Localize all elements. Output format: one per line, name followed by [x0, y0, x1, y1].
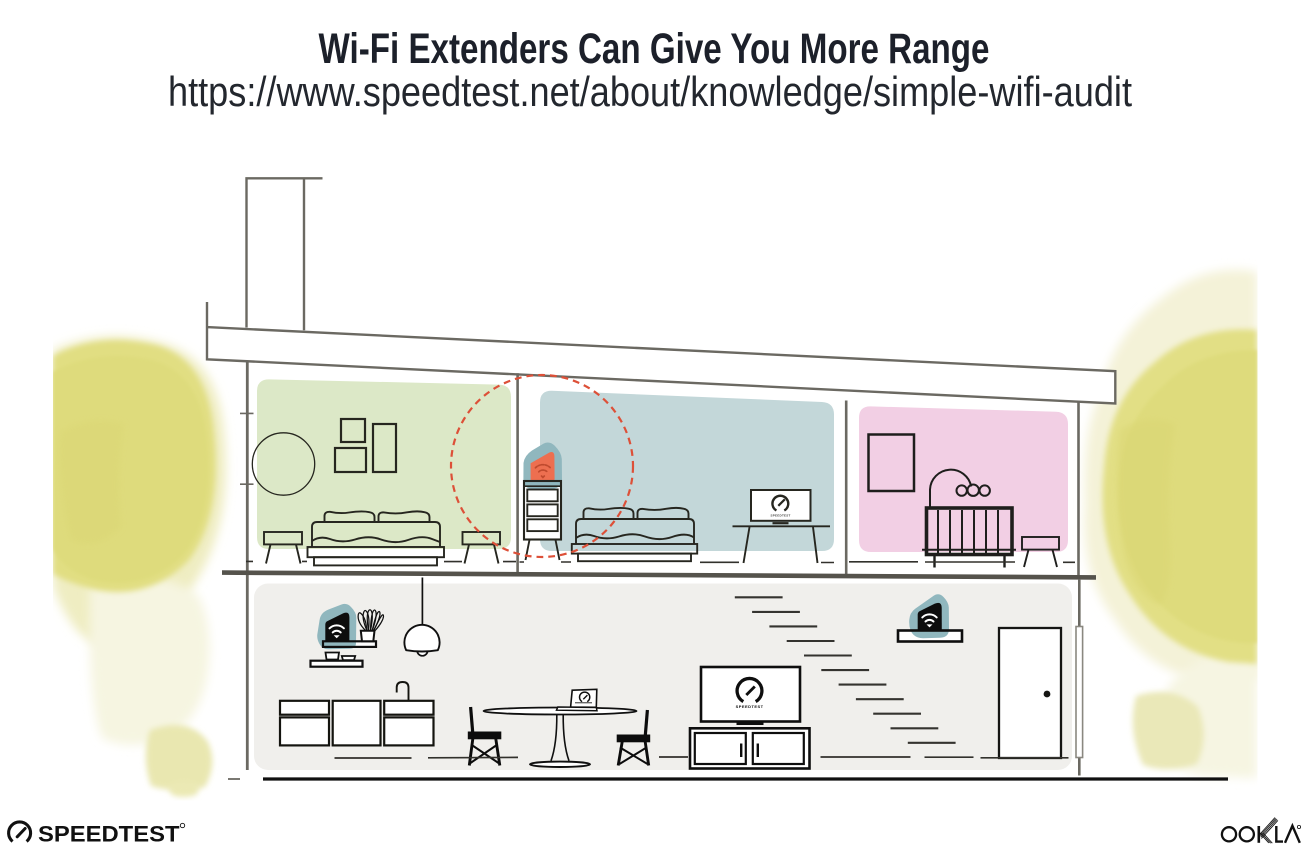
svg-text:SPEEDTEST: SPEEDTEST	[771, 514, 791, 518]
svg-text:Wi-Fi Extenders Can Give You M: Wi-Fi Extenders Can Give You More Range	[319, 25, 990, 73]
svg-text:SPEEDTEST: SPEEDTEST	[38, 822, 180, 847]
svg-text:SPEEDTEST: SPEEDTEST	[736, 704, 764, 709]
svg-text:https://www.speedtest.net/abou: https://www.speedtest.net/about/knowledg…	[168, 68, 1132, 115]
